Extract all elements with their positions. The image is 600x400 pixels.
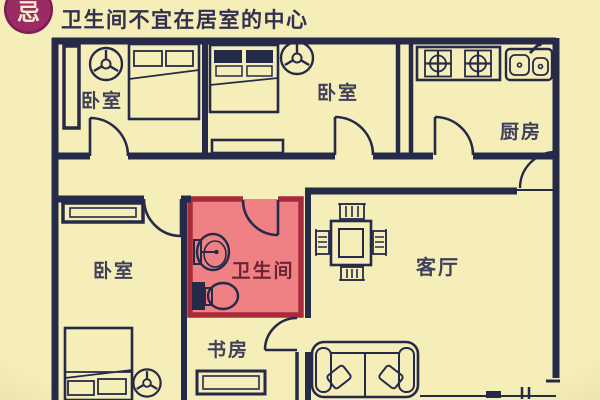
room-label-living-room: 客厅 <box>415 255 460 279</box>
door-bedroom-left <box>144 199 181 236</box>
door-bedroom-top-mid <box>335 117 373 155</box>
dining-table-icon <box>316 204 386 280</box>
room-label-study: 书房 <box>207 338 249 361</box>
window-icon <box>63 203 143 222</box>
wardrobe-icon <box>64 46 79 128</box>
sofa-icon <box>312 342 418 397</box>
ceiling-fan-icon <box>133 369 160 396</box>
bench-icon <box>212 140 283 153</box>
room-label-bedroom-left: 卧室 <box>93 259 135 282</box>
bed-icon <box>129 44 199 119</box>
bed-icon <box>210 45 278 112</box>
room-label-bathroom: 卫生间 <box>231 259 294 282</box>
room-label-bedroom-top-mid: 卧室 <box>317 81 359 104</box>
taboo-badge-label: 忌 <box>17 2 40 25</box>
desk-icon <box>197 371 265 394</box>
bed-icon <box>65 328 132 400</box>
room-label-kitchen: 厨房 <box>500 120 542 143</box>
door-bedroom-top-left <box>90 118 128 156</box>
door-study <box>265 318 297 350</box>
page-title: 卫生间不宜在居室的中心 <box>61 4 309 34</box>
floor-plan: 卧室 卧室 厨房 卧室 卫生间 客厅 书房 <box>0 0 600 400</box>
kitchen-sink-icon <box>506 42 552 81</box>
ceiling-fan-icon <box>90 48 122 80</box>
ceiling-fan-icon <box>281 42 313 74</box>
door-kitchen <box>435 117 473 155</box>
room-label-bedroom-top-left: 卧室 <box>81 89 123 112</box>
stove-icon <box>417 47 500 80</box>
